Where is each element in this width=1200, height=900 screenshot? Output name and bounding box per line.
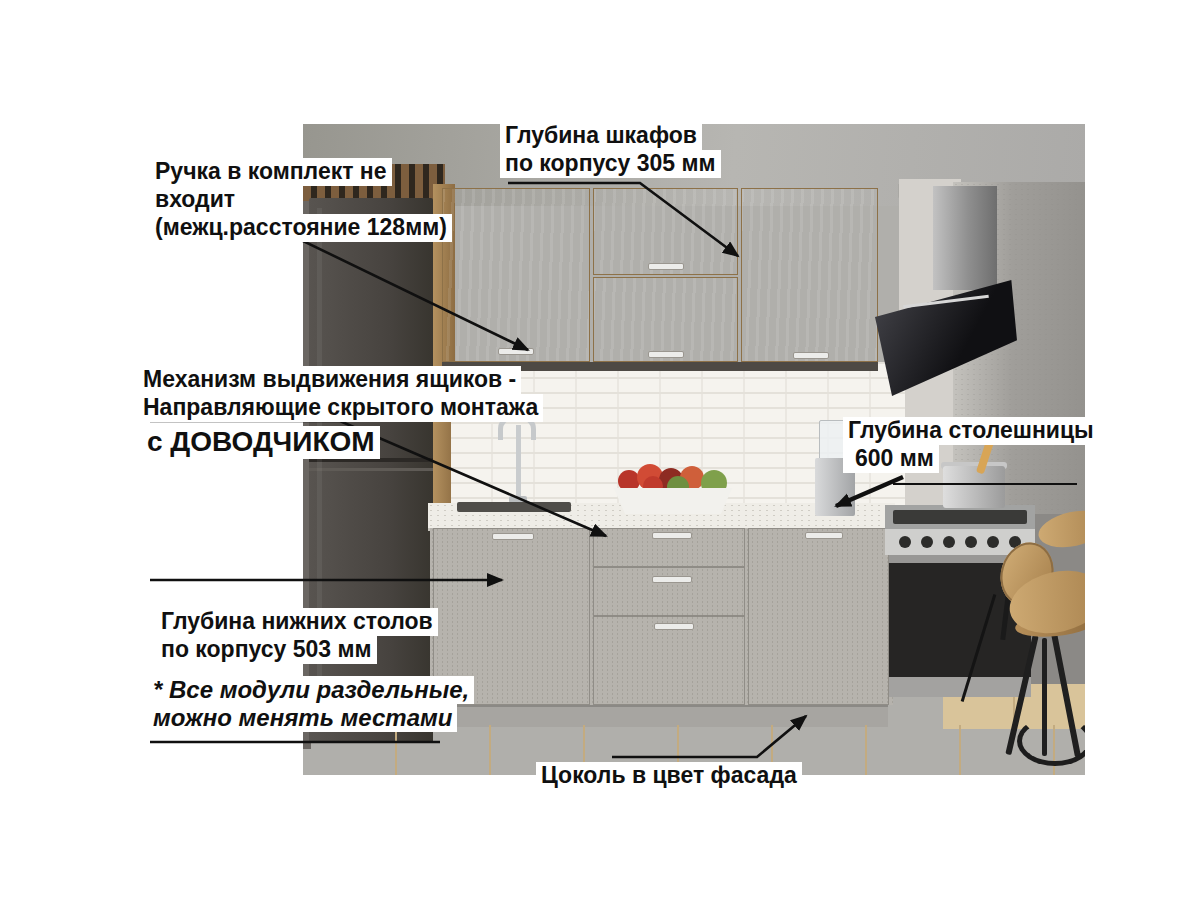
label-line: Цоколь в цвет фасада xyxy=(536,762,802,790)
label-line: Глубина столешницы xyxy=(843,417,1099,445)
label-line: 600 мм xyxy=(843,445,939,473)
arrow-countertop-depth xyxy=(836,477,903,506)
label-line: Направляющие скрытого монтажа xyxy=(138,394,543,422)
label-line: Глубина шкафов xyxy=(500,122,702,150)
label-plinth-note: Цоколь в цвет фасада xyxy=(536,762,802,790)
label-drawer-mechanism: Механизм выдвижения ящиков - Направляющи… xyxy=(138,366,543,422)
label-countertop-depth: Глубина столешницы 600 мм xyxy=(843,417,1099,473)
label-line: по корпусу 305 мм xyxy=(500,150,721,178)
label-soft-close: с ДОВОДЧИКОМ xyxy=(142,426,380,459)
label-line: по корпусу 503 мм xyxy=(156,636,377,664)
label-line: можно менять местами xyxy=(148,704,457,732)
label-line: Глубина нижних столов xyxy=(156,608,438,636)
arrow-handle-note xyxy=(152,238,528,350)
arrow-plinth xyxy=(612,716,806,757)
label-line: Механизм выдвижения ящиков - xyxy=(138,366,521,394)
label-cabinet-depth: Глубина шкафов по корпусу 305 мм xyxy=(500,122,721,178)
annotated-kitchen-image: Глубина шкафов по корпусу 305 мм Ручка в… xyxy=(0,0,1200,900)
label-handle-note: Ручка в комплект не входит (межц.расстоя… xyxy=(150,158,452,242)
label-modules-note: * Все модули раздельные, можно менять ме… xyxy=(148,676,474,732)
label-line: входит xyxy=(150,186,240,214)
arrow-cabinet-depth xyxy=(508,183,738,256)
label-line: с ДОВОДЧИКОМ xyxy=(142,426,380,459)
label-line: * Все модули раздельные, xyxy=(148,676,474,704)
label-line: (межц.расстояние 128мм) xyxy=(150,214,452,242)
label-base-depth: Глубина нижних столов по корпусу 503 мм xyxy=(156,608,438,664)
label-line: Ручка в комплект не xyxy=(150,158,392,186)
